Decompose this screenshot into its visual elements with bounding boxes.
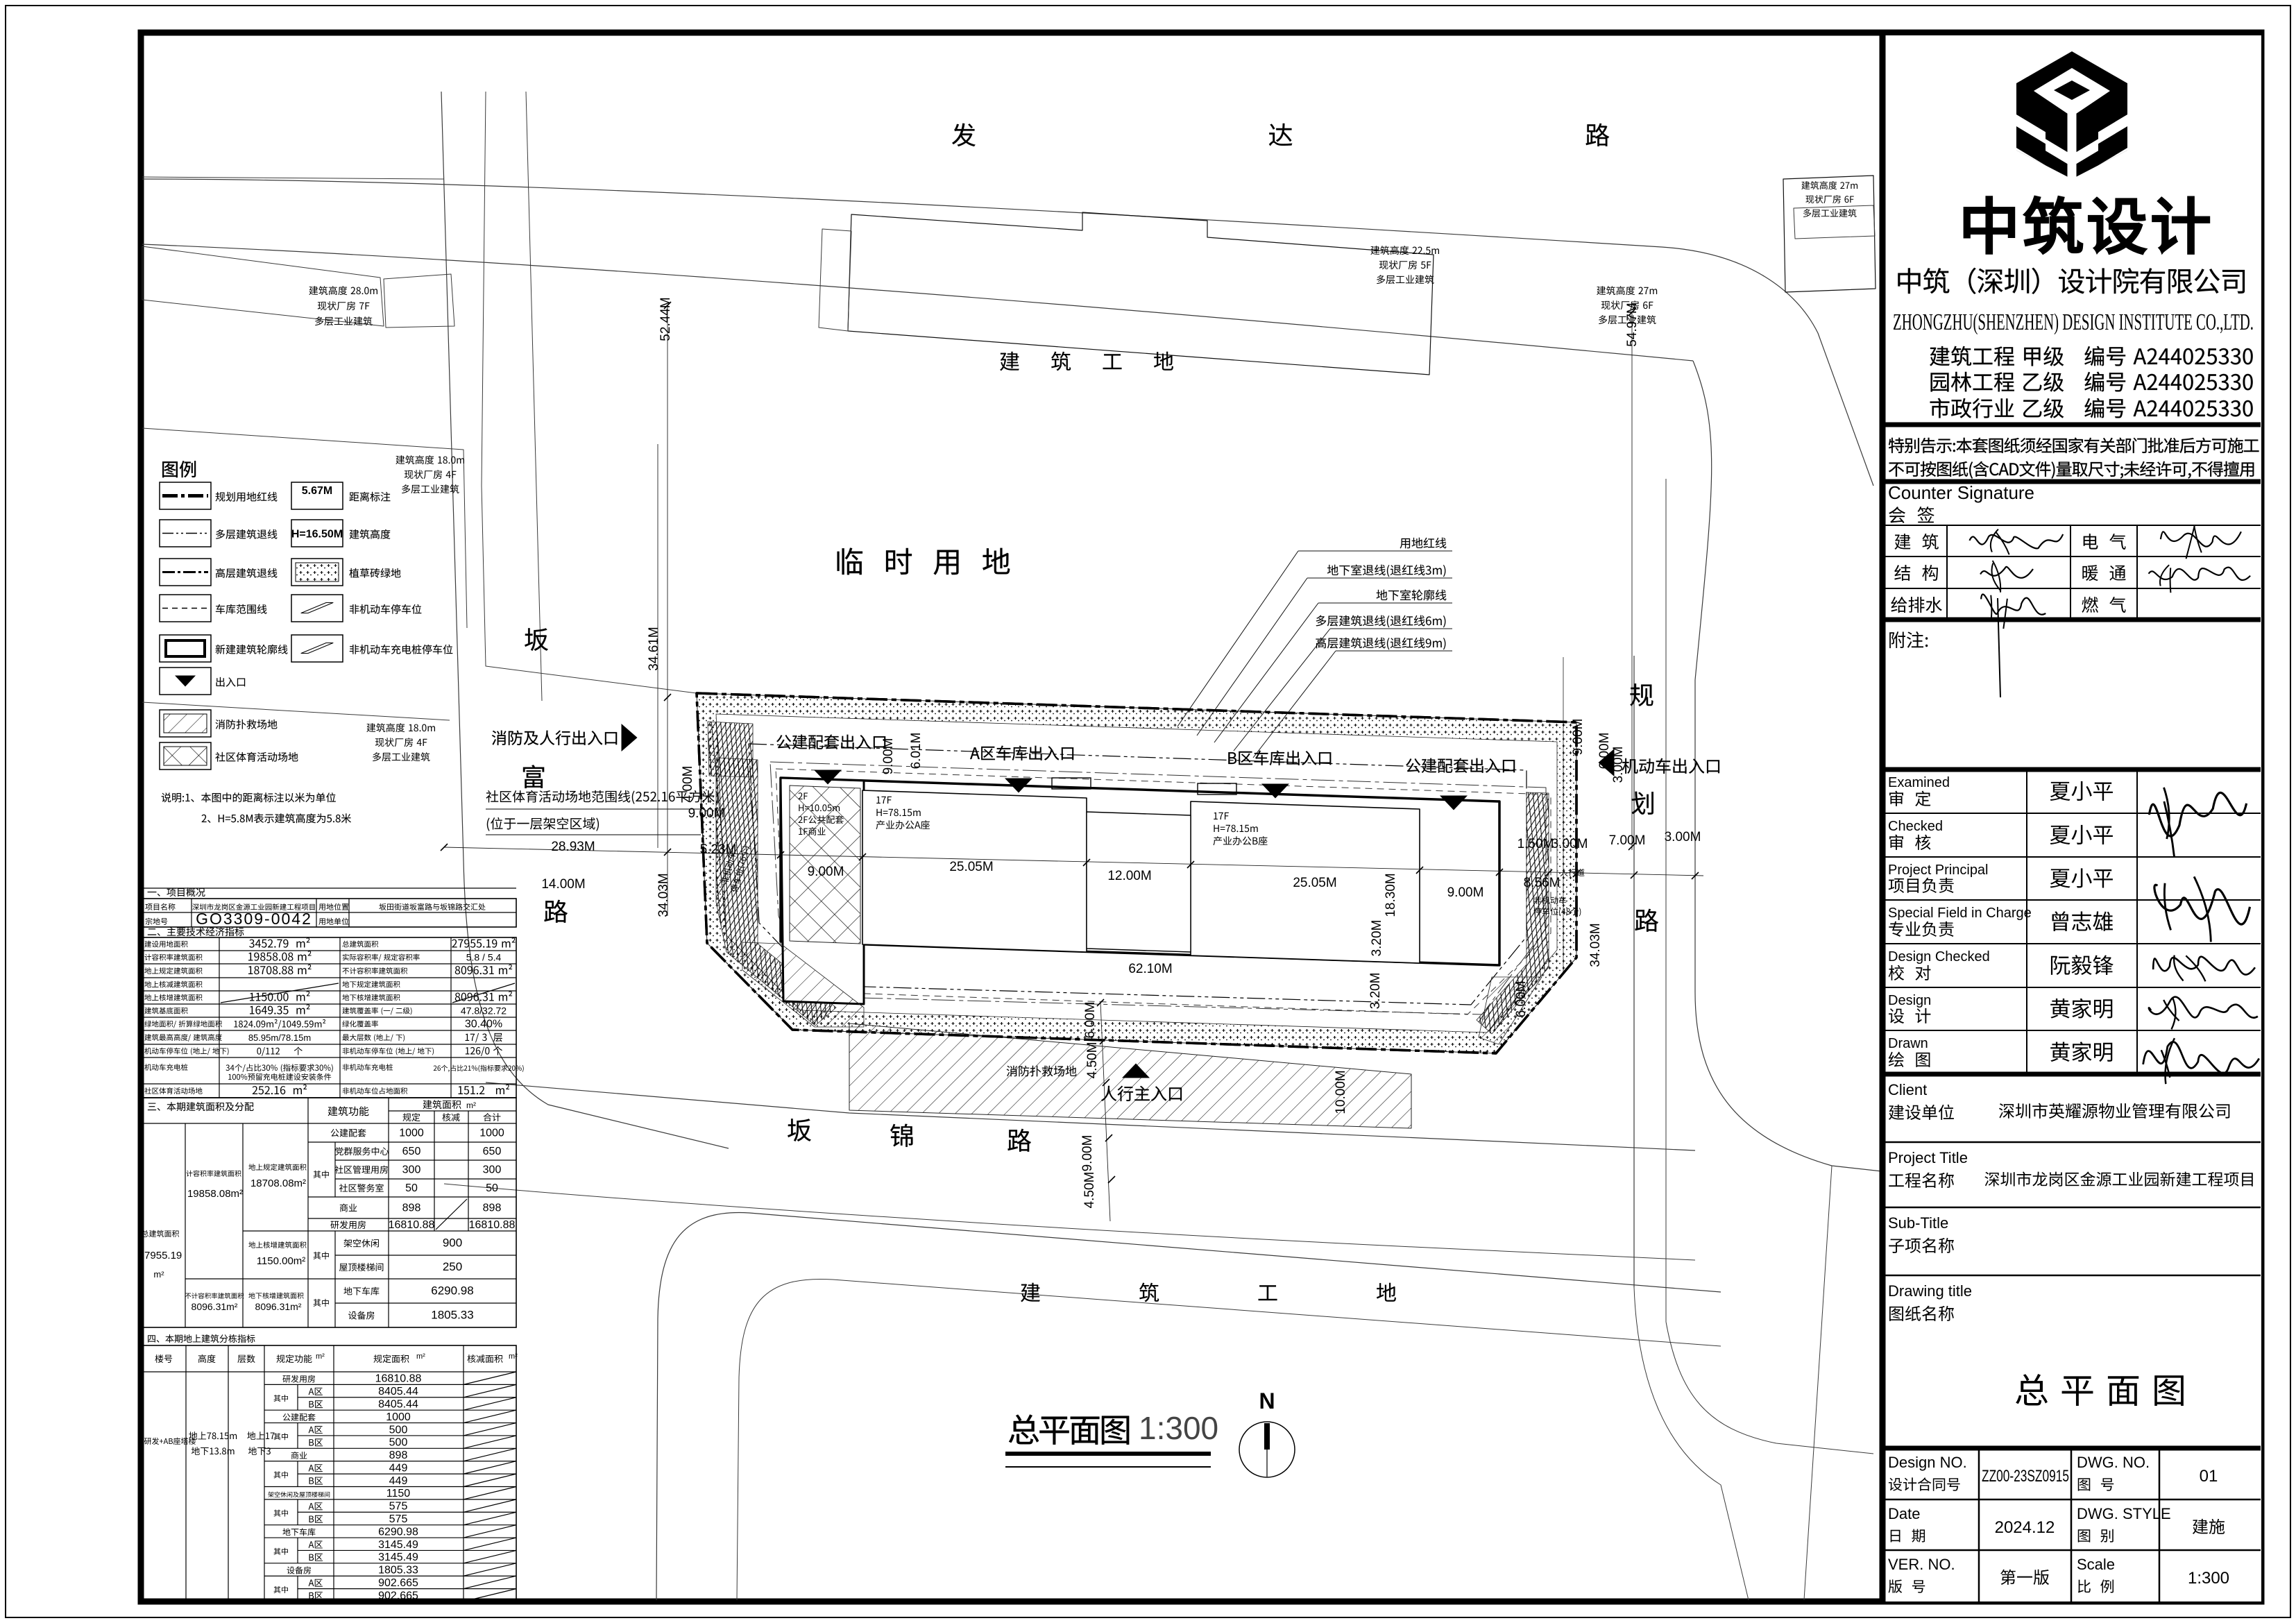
svg-text:34.03M: 34.03M (656, 873, 671, 917)
svg-text:1000: 1000 (399, 1128, 424, 1139)
svg-text:01: 01 (2200, 1467, 2218, 1486)
svg-text:6.00M: 6.00M (1083, 1002, 1098, 1039)
svg-text:3.00M: 3.00M (1611, 747, 1626, 783)
svg-text:18708.08m²: 18708.08m² (250, 1178, 306, 1189)
svg-text:3145.49: 3145.49 (378, 1539, 418, 1551)
svg-text:449: 449 (389, 1475, 408, 1487)
svg-text:16810.88: 16810.88 (375, 1373, 422, 1385)
svg-text:1000: 1000 (386, 1411, 411, 1423)
svg-text:300: 300 (402, 1164, 421, 1176)
svg-text:9.00M: 9.00M (688, 806, 725, 821)
svg-text:1805.33: 1805.33 (431, 1309, 473, 1322)
svg-text:27955.19: 27955.19 (139, 1250, 182, 1261)
svg-text:Examined: Examined (1888, 775, 1950, 790)
svg-text:25.05M: 25.05M (1293, 876, 1336, 890)
svg-text:54.97M: 54.97M (1625, 303, 1640, 346)
svg-text:8.56M: 8.56M (1524, 876, 1561, 890)
svg-text:3.20M: 3.20M (1370, 920, 1384, 957)
svg-text:3.20M: 3.20M (1368, 973, 1383, 1010)
svg-text:650: 650 (483, 1146, 502, 1157)
svg-text:m²: m² (316, 1352, 325, 1361)
svg-text:m²: m² (153, 1269, 164, 1280)
svg-text:3145.49: 3145.49 (378, 1552, 418, 1563)
svg-text:1150.00m²: 1150.00m² (257, 1255, 306, 1267)
svg-text:902.665: 902.665 (378, 1590, 418, 1601)
svg-text:8096.31m²: 8096.31m² (255, 1301, 302, 1312)
svg-text:575: 575 (389, 1501, 408, 1513)
svg-text:900: 900 (443, 1237, 462, 1250)
svg-text:ZZ00-23SZ0915: ZZ00-23SZ0915 (1982, 1467, 2069, 1486)
svg-text:898: 898 (389, 1450, 408, 1461)
svg-text:9.00M: 9.00M (881, 738, 896, 775)
svg-text:62.10M: 62.10M (1128, 962, 1172, 976)
svg-text:1150: 1150 (386, 1488, 411, 1499)
svg-text:1000: 1000 (479, 1128, 504, 1139)
svg-text:28.93M: 28.93M (551, 840, 595, 854)
svg-text:2024.12: 2024.12 (1995, 1518, 2055, 1537)
svg-text:Client: Client (1888, 1081, 1927, 1098)
svg-text:50: 50 (486, 1182, 498, 1194)
svg-text:4.50M: 4.50M (1085, 1042, 1100, 1079)
svg-text:Project Title: Project Title (1888, 1149, 1968, 1166)
svg-text:DWG. STYLE: DWG. STYLE (2077, 1505, 2171, 1522)
svg-text:449: 449 (389, 1462, 408, 1474)
svg-text:898: 898 (402, 1203, 421, 1214)
svg-text:25.05M: 25.05M (949, 860, 993, 874)
svg-text:3.00M: 3.00M (1665, 830, 1701, 844)
svg-text:250: 250 (443, 1260, 462, 1273)
svg-text:Counter Signature: Counter Signature (1888, 482, 2034, 503)
svg-text:m²: m² (466, 1101, 476, 1110)
svg-text:500: 500 (389, 1424, 408, 1436)
svg-text:34.03M: 34.03M (1588, 923, 1603, 967)
svg-text:H=16.50M: H=16.50M (291, 529, 343, 541)
svg-text:6.00M: 6.00M (1597, 733, 1612, 770)
svg-text:m²: m² (509, 1352, 518, 1361)
svg-text:Design NO.: Design NO. (1888, 1454, 1967, 1471)
svg-text:6290.98: 6290.98 (431, 1284, 473, 1298)
svg-text:DWG. NO.: DWG. NO. (2077, 1454, 2150, 1471)
svg-text:1:300: 1:300 (2188, 1569, 2229, 1588)
svg-text:16810.88: 16810.88 (389, 1219, 435, 1231)
svg-text:Checked: Checked (1888, 819, 1943, 834)
svg-text:9.00M: 9.00M (808, 865, 844, 879)
svg-text:8096.31m²: 8096.31m² (192, 1301, 238, 1312)
svg-text:1805.33: 1805.33 (378, 1565, 418, 1577)
svg-text:5.23M: 5.23M (700, 842, 737, 857)
svg-text:34.61M: 34.61M (647, 627, 661, 670)
svg-text:5.67M: 5.67M (302, 485, 332, 497)
svg-text:1.50M: 1.50M (1517, 837, 1554, 851)
svg-text:Sub-Title: Sub-Title (1888, 1214, 1948, 1232)
svg-text:N: N (1259, 1388, 1275, 1413)
svg-text:650: 650 (402, 1146, 421, 1157)
svg-text:Drawn: Drawn (1888, 1036, 1928, 1051)
svg-text:9.00M: 9.00M (1080, 1135, 1095, 1172)
svg-text:Special Field in Charge: Special Field in Charge (1888, 906, 2032, 921)
svg-text:Drawing title: Drawing title (1888, 1282, 1972, 1300)
svg-text:GO3309-0042: GO3309-0042 (196, 910, 312, 928)
svg-text:30.40%: 30.40% (465, 1019, 502, 1030)
svg-text:5.8 / 5.4: 5.8 / 5.4 (466, 952, 502, 963)
svg-text:19858.08m²: 19858.08m² (187, 1188, 243, 1200)
svg-text:8405.44: 8405.44 (378, 1398, 418, 1410)
svg-text:Design Checked: Design Checked (1888, 949, 1990, 965)
svg-text:7.00M: 7.00M (1609, 833, 1646, 848)
svg-text:50: 50 (405, 1182, 418, 1194)
svg-text:300: 300 (483, 1164, 502, 1176)
svg-text:12.00M: 12.00M (1107, 869, 1151, 883)
svg-text:9.00M: 9.00M (1447, 885, 1484, 900)
svg-text:9.00M: 9.00M (1571, 719, 1585, 756)
svg-text:ZHONGZHU(SHENZHEN) DESIGN INST: ZHONGZHU(SHENZHEN) DESIGN INSTITUTE CO.,… (1893, 309, 2254, 335)
svg-text:18.30M: 18.30M (1384, 873, 1398, 917)
svg-text:VER. NO.: VER. NO. (1888, 1556, 1955, 1573)
svg-text:902.665: 902.665 (378, 1577, 418, 1589)
svg-text:1:300: 1:300 (1139, 1410, 1218, 1446)
svg-text:Date: Date (1888, 1505, 1920, 1522)
svg-text:Design: Design (1888, 993, 1931, 1008)
svg-text:500: 500 (389, 1437, 408, 1449)
svg-text:85.95m/78.15m: 85.95m/78.15m (248, 1033, 311, 1043)
svg-text:575: 575 (389, 1513, 408, 1525)
svg-text:6.00M: 6.00M (1514, 981, 1529, 1018)
svg-text:4.00M: 4.00M (681, 766, 695, 803)
svg-text:6290.98: 6290.98 (378, 1526, 418, 1538)
svg-text:10.00M: 10.00M (1334, 1070, 1348, 1114)
svg-text:6.01M: 6.01M (909, 733, 924, 770)
svg-text:47.8/32.72: 47.8/32.72 (461, 1005, 507, 1017)
svg-text:Scale: Scale (2077, 1556, 2115, 1573)
svg-text:4.50M: 4.50M (1082, 1172, 1097, 1209)
svg-text:14.00M: 14.00M (541, 877, 585, 892)
svg-text:52.44M: 52.44M (658, 297, 673, 341)
svg-text:Project Principal: Project Principal (1888, 863, 1989, 878)
svg-text:8405.44: 8405.44 (378, 1386, 418, 1397)
svg-text:m²: m² (416, 1352, 425, 1361)
svg-text:898: 898 (483, 1203, 502, 1214)
svg-text:16810.88: 16810.88 (469, 1219, 516, 1231)
svg-text:3.00M: 3.00M (1551, 837, 1588, 851)
